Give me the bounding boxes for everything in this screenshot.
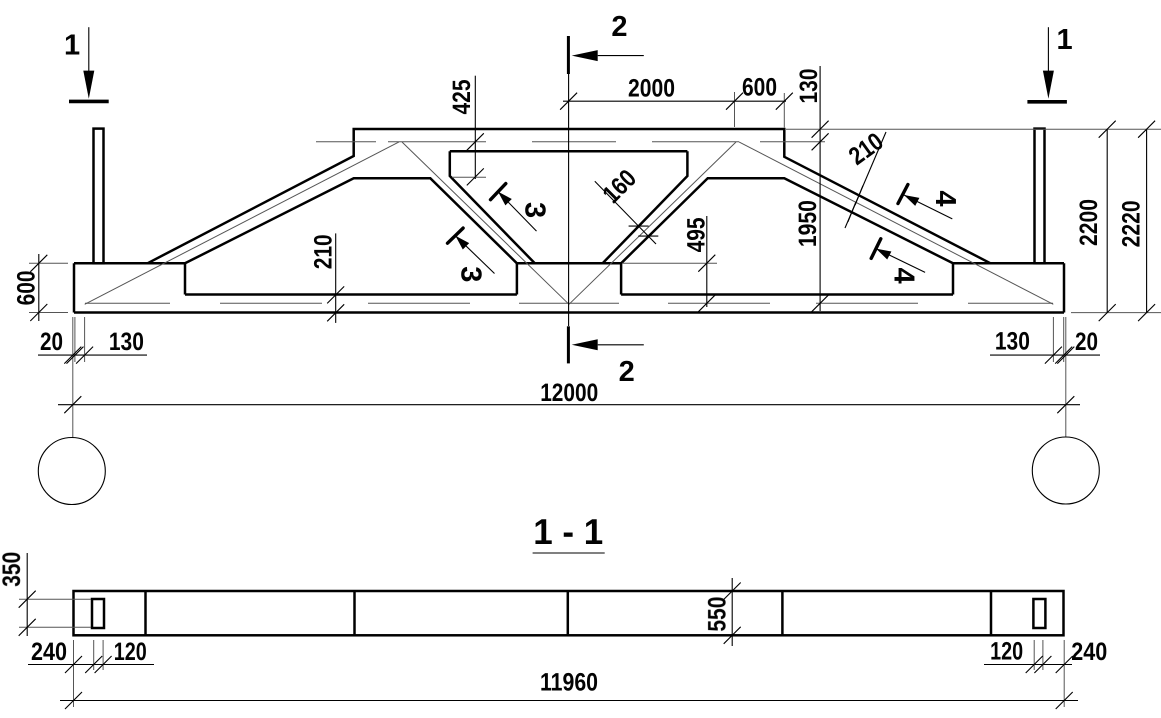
- svg-text:495: 495: [683, 217, 711, 252]
- svg-text:130: 130: [995, 327, 1030, 355]
- svg-text:350: 350: [0, 552, 26, 587]
- svg-text:2: 2: [611, 11, 627, 43]
- svg-text:20: 20: [40, 328, 63, 356]
- svg-text:4: 4: [888, 267, 920, 283]
- svg-text:20: 20: [1075, 328, 1098, 356]
- svg-text:240: 240: [1071, 638, 1107, 666]
- svg-text:130: 130: [795, 69, 823, 104]
- svg-text:120: 120: [990, 637, 1023, 665]
- svg-text:1: 1: [1057, 24, 1073, 56]
- svg-text:2: 2: [619, 356, 635, 388]
- svg-text:11960: 11960: [540, 669, 598, 697]
- svg-text:425: 425: [448, 80, 476, 115]
- svg-text:600: 600: [742, 74, 777, 102]
- svg-text:3: 3: [519, 202, 551, 218]
- svg-text:12000: 12000: [540, 379, 598, 407]
- svg-text:240: 240: [31, 638, 67, 666]
- svg-text:2220: 2220: [1118, 200, 1146, 247]
- svg-text:600: 600: [13, 270, 41, 305]
- svg-text:130: 130: [109, 328, 144, 356]
- svg-text:120: 120: [114, 638, 147, 666]
- svg-text:4: 4: [929, 190, 961, 206]
- svg-text:550: 550: [704, 597, 732, 632]
- svg-text:2000: 2000: [628, 74, 675, 102]
- svg-text:2200: 2200: [1075, 199, 1103, 246]
- svg-text:3: 3: [454, 266, 486, 282]
- svg-text:210: 210: [310, 234, 338, 269]
- svg-text:1 - 1: 1 - 1: [533, 511, 603, 552]
- svg-text:1: 1: [64, 29, 80, 61]
- svg-text:1950: 1950: [794, 200, 822, 247]
